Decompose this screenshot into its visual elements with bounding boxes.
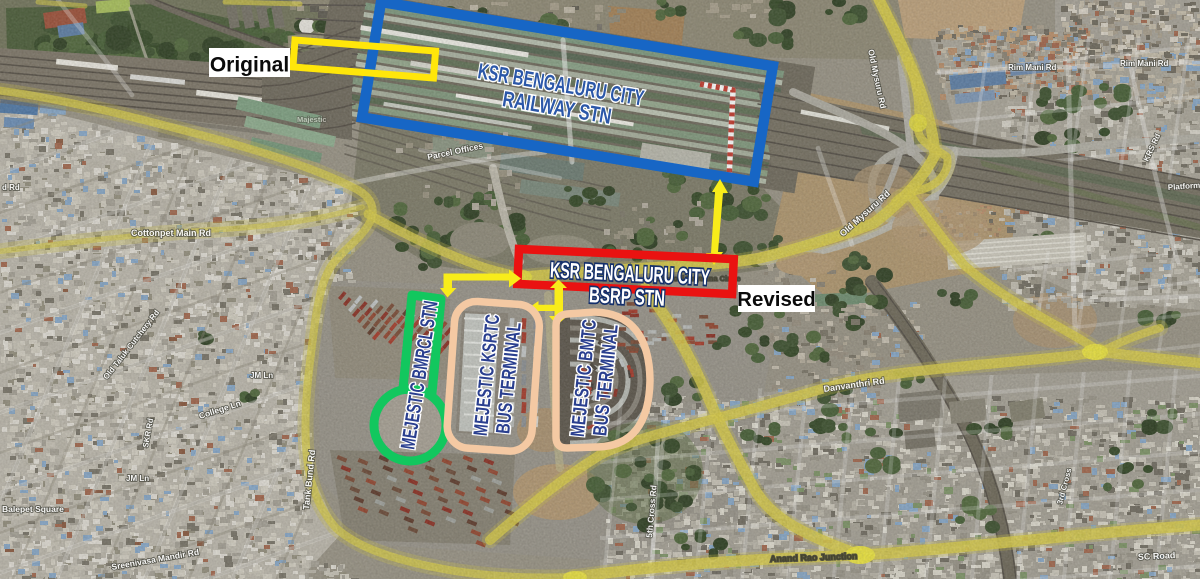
svg-text:Revised: Revised: [737, 288, 816, 311]
svg-text:BSRP STN: BSRP STN: [588, 282, 665, 311]
svg-text:Original: Original: [210, 54, 289, 77]
svg-text:JM Ln: JM Ln: [126, 474, 149, 483]
svg-text:Balepet Square: Balepet Square: [2, 504, 64, 514]
svg-text:Majestic: Majestic: [297, 115, 327, 124]
svg-text:SC Road: SC Road: [1138, 550, 1176, 562]
svg-text:Cottonpet Main Rd: Cottonpet Main Rd: [131, 228, 211, 238]
svg-text:Rim Mani Rd: Rim Mani Rd: [1008, 63, 1057, 72]
svg-text:JM Ln: JM Ln: [250, 371, 273, 380]
svg-text:Rim Mani Rd: Rim Mani Rd: [1120, 59, 1169, 68]
svg-text:d Rd: d Rd: [2, 183, 20, 192]
